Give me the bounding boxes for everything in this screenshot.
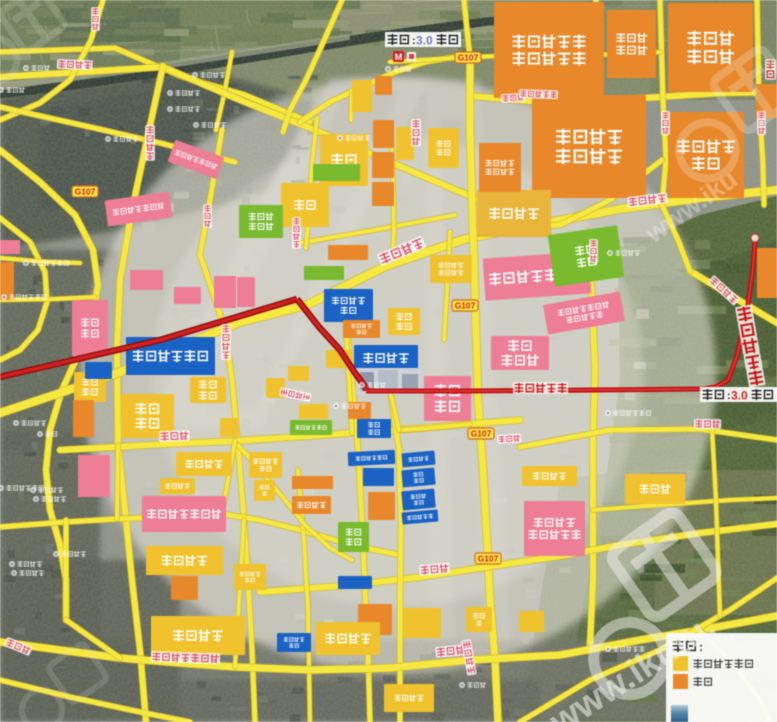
svg-text:3.0: 3.0 [416, 34, 433, 48]
svg-text:G107: G107 [458, 53, 479, 63]
svg-text:G107: G107 [455, 301, 476, 311]
svg-text:G107: G107 [75, 187, 96, 197]
svg-text:G107: G107 [478, 554, 499, 564]
svg-text:3.0: 3.0 [731, 389, 748, 403]
svg-text:G107: G107 [471, 429, 492, 439]
svg-text:M: M [395, 52, 403, 62]
